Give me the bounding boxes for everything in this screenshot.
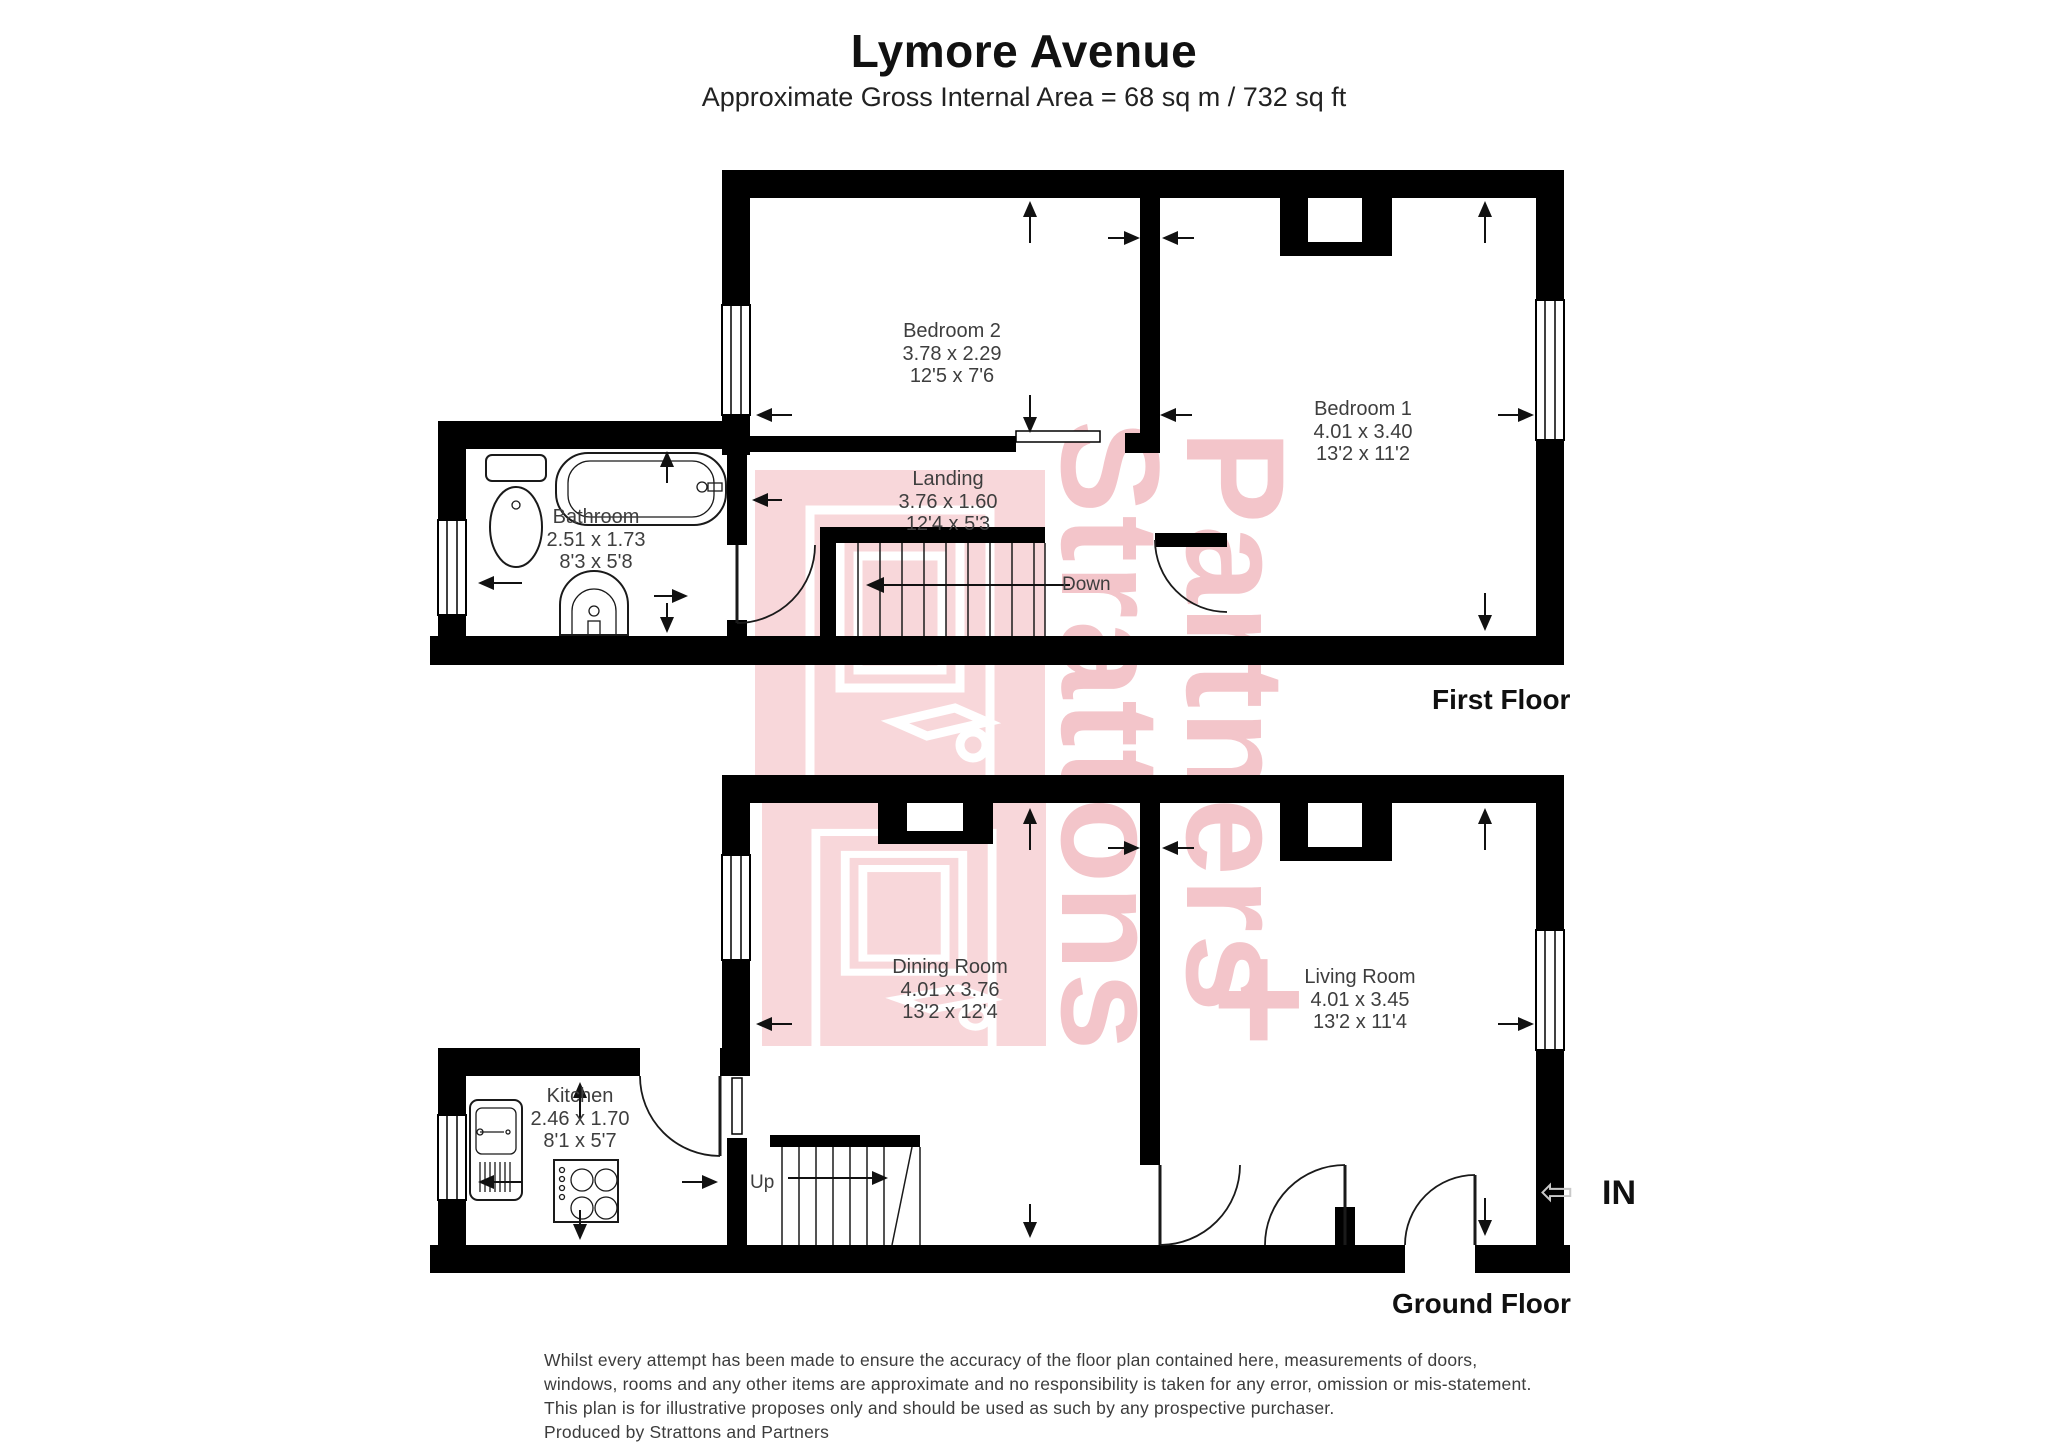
room-name: Living Room (1240, 966, 1480, 989)
ground-floor-caption: Ground Floor (1392, 1288, 1571, 1320)
room-name: Dining Room (830, 956, 1070, 979)
room-label-dining: Dining Room 4.01 x 3.76 13'2 x 12'4 (830, 956, 1070, 1024)
disclaimer-line: This plan is for illustrative proposes o… (544, 1396, 1604, 1420)
page-title: Lymore Avenue (0, 24, 2048, 78)
room-dim-metric: 3.76 x 1.60 (828, 491, 1068, 514)
room-label-bathroom: Bathroom 2.51 x 1.73 8'3 x 5'8 (476, 506, 716, 574)
room-dim-imperial: 13'2 x 11'2 (1243, 443, 1483, 466)
room-label-bedroom2: Bedroom 2 3.78 x 2.29 12'5 x 7'6 (832, 320, 1072, 388)
disclaimer: Whilst every attempt has been made to en… (544, 1348, 1604, 1444)
disclaimer-line: windows, rooms and any other items are a… (544, 1372, 1604, 1396)
room-dim-imperial: 12'4 x 5'3 (828, 513, 1068, 536)
entrance-arrow-icon: ⇦ (1540, 1172, 1574, 1212)
room-dim-imperial: 13'2 x 12'4 (830, 1001, 1070, 1024)
room-name: Kitchen (460, 1085, 700, 1108)
room-dim-imperial: 13'2 x 11'4 (1240, 1011, 1480, 1034)
room-name: Bedroom 1 (1243, 398, 1483, 421)
room-label-landing: Landing 3.76 x 1.60 12'4 x 5'3 (828, 468, 1068, 536)
room-dim-imperial: 8'1 x 5'7 (460, 1130, 700, 1153)
page-subtitle: Approximate Gross Internal Area = 68 sq … (0, 82, 2048, 113)
room-name: Bathroom (476, 506, 716, 529)
room-dim-metric: 2.51 x 1.73 (476, 529, 716, 552)
ground-floor-plan (430, 770, 1590, 1310)
entrance-in-label: IN (1602, 1174, 1636, 1213)
room-dim-imperial: 8'3 x 5'8 (476, 551, 716, 574)
room-dim-imperial: 12'5 x 7'6 (832, 365, 1072, 388)
stairs-up-label: Up (750, 1172, 774, 1194)
room-label-kitchen: Kitchen 2.46 x 1.70 8'1 x 5'7 (460, 1085, 700, 1153)
first-floor-stairs (858, 543, 1070, 636)
room-name: Bedroom 2 (832, 320, 1072, 343)
first-floor-caption: First Floor (1432, 684, 1570, 716)
room-dim-metric: 4.01 x 3.40 (1243, 421, 1483, 444)
room-label-living: Living Room 4.01 x 3.45 13'2 x 11'4 (1240, 966, 1480, 1034)
room-label-bedroom1: Bedroom 1 4.01 x 3.40 13'2 x 11'2 (1243, 398, 1483, 466)
room-dim-metric: 4.01 x 3.76 (830, 979, 1070, 1002)
room-dim-metric: 3.78 x 2.29 (832, 343, 1072, 366)
room-dim-metric: 4.01 x 3.45 (1240, 989, 1480, 1012)
stairs-down-label: Down (1062, 574, 1111, 596)
disclaimer-line: Produced by Strattons and Partners (544, 1420, 1604, 1444)
floorplan-page: Lymore Avenue Approximate Gross Internal… (0, 0, 2048, 1447)
room-name: Landing (828, 468, 1068, 491)
room-dim-metric: 2.46 x 1.70 (460, 1108, 700, 1131)
ground-floor-stairs (782, 1147, 920, 1245)
disclaimer-line: Whilst every attempt has been made to en… (544, 1348, 1604, 1372)
